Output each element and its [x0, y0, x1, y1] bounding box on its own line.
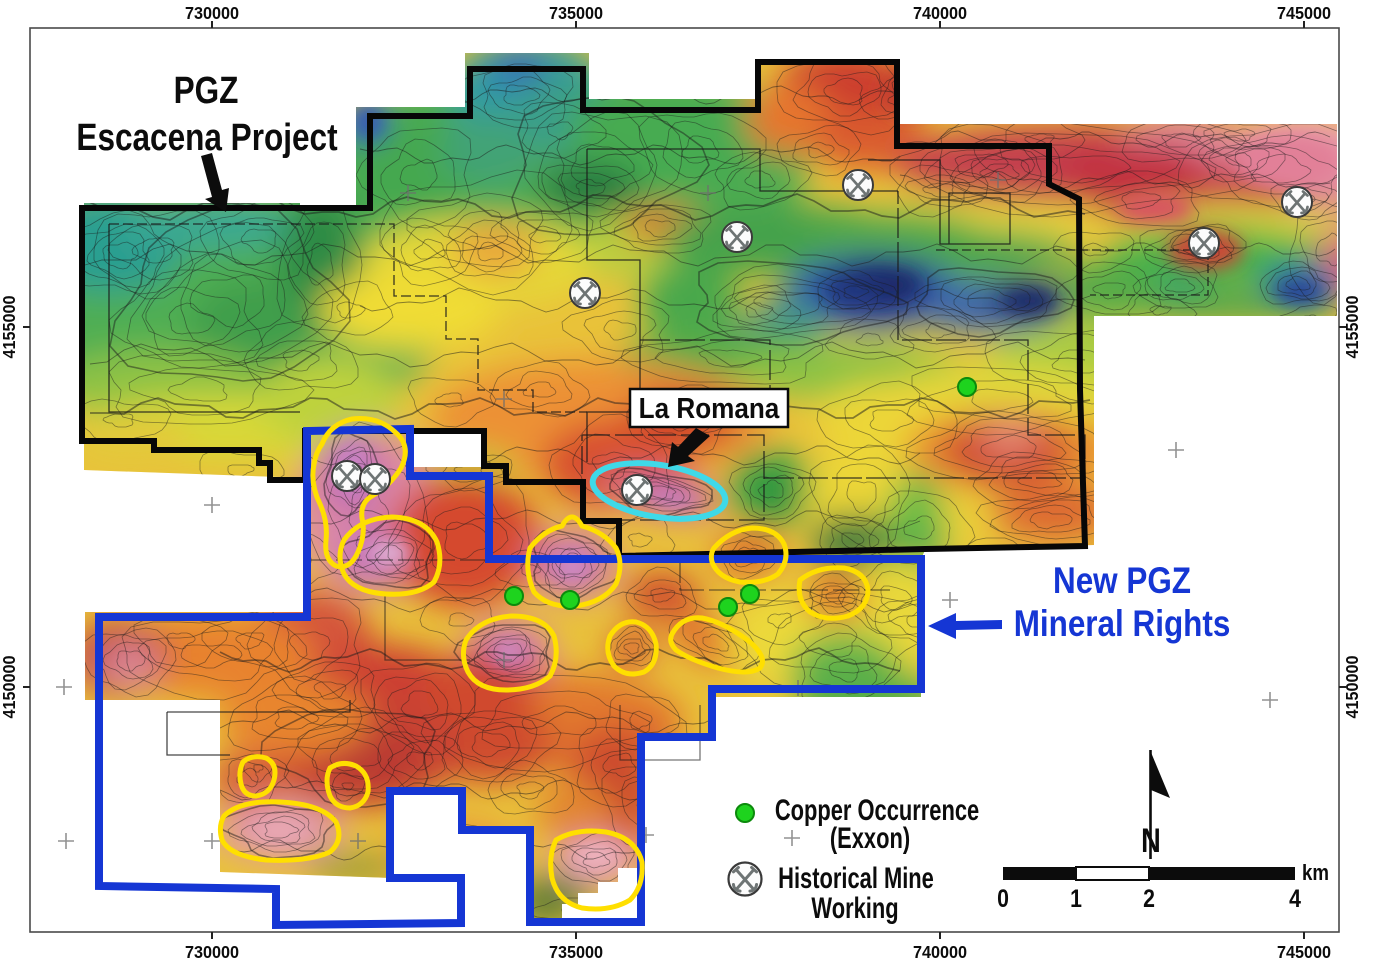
svg-text:Working: Working: [811, 891, 898, 925]
svg-text:730000: 730000: [185, 3, 239, 23]
svg-text:La Romana: La Romana: [639, 392, 780, 425]
svg-text:Escacena Project: Escacena Project: [76, 116, 337, 158]
svg-text:735000: 735000: [549, 942, 603, 960]
svg-text:4155000: 4155000: [0, 295, 19, 358]
svg-text:PGZ: PGZ: [174, 69, 239, 111]
svg-text:745000: 745000: [1277, 942, 1331, 960]
svg-text:km: km: [1302, 862, 1329, 886]
svg-text:740000: 740000: [913, 942, 967, 960]
svg-text:New PGZ: New PGZ: [1053, 561, 1191, 602]
svg-text:4150000: 4150000: [1342, 655, 1362, 718]
svg-text:735000: 735000: [549, 3, 603, 23]
svg-text:(Exxon): (Exxon): [830, 821, 910, 855]
svg-text:4: 4: [1289, 884, 1301, 912]
svg-text:745000: 745000: [1277, 3, 1331, 23]
svg-text:740000: 740000: [913, 3, 967, 23]
svg-text:4150000: 4150000: [0, 655, 19, 718]
svg-text:Mineral Rights: Mineral Rights: [1014, 604, 1231, 645]
svg-text:4155000: 4155000: [1342, 295, 1362, 358]
svg-text:1: 1: [1070, 884, 1082, 912]
svg-text:2: 2: [1143, 884, 1155, 912]
svg-text:N: N: [1141, 821, 1161, 860]
svg-text:0: 0: [997, 884, 1009, 912]
svg-text:730000: 730000: [185, 942, 239, 960]
